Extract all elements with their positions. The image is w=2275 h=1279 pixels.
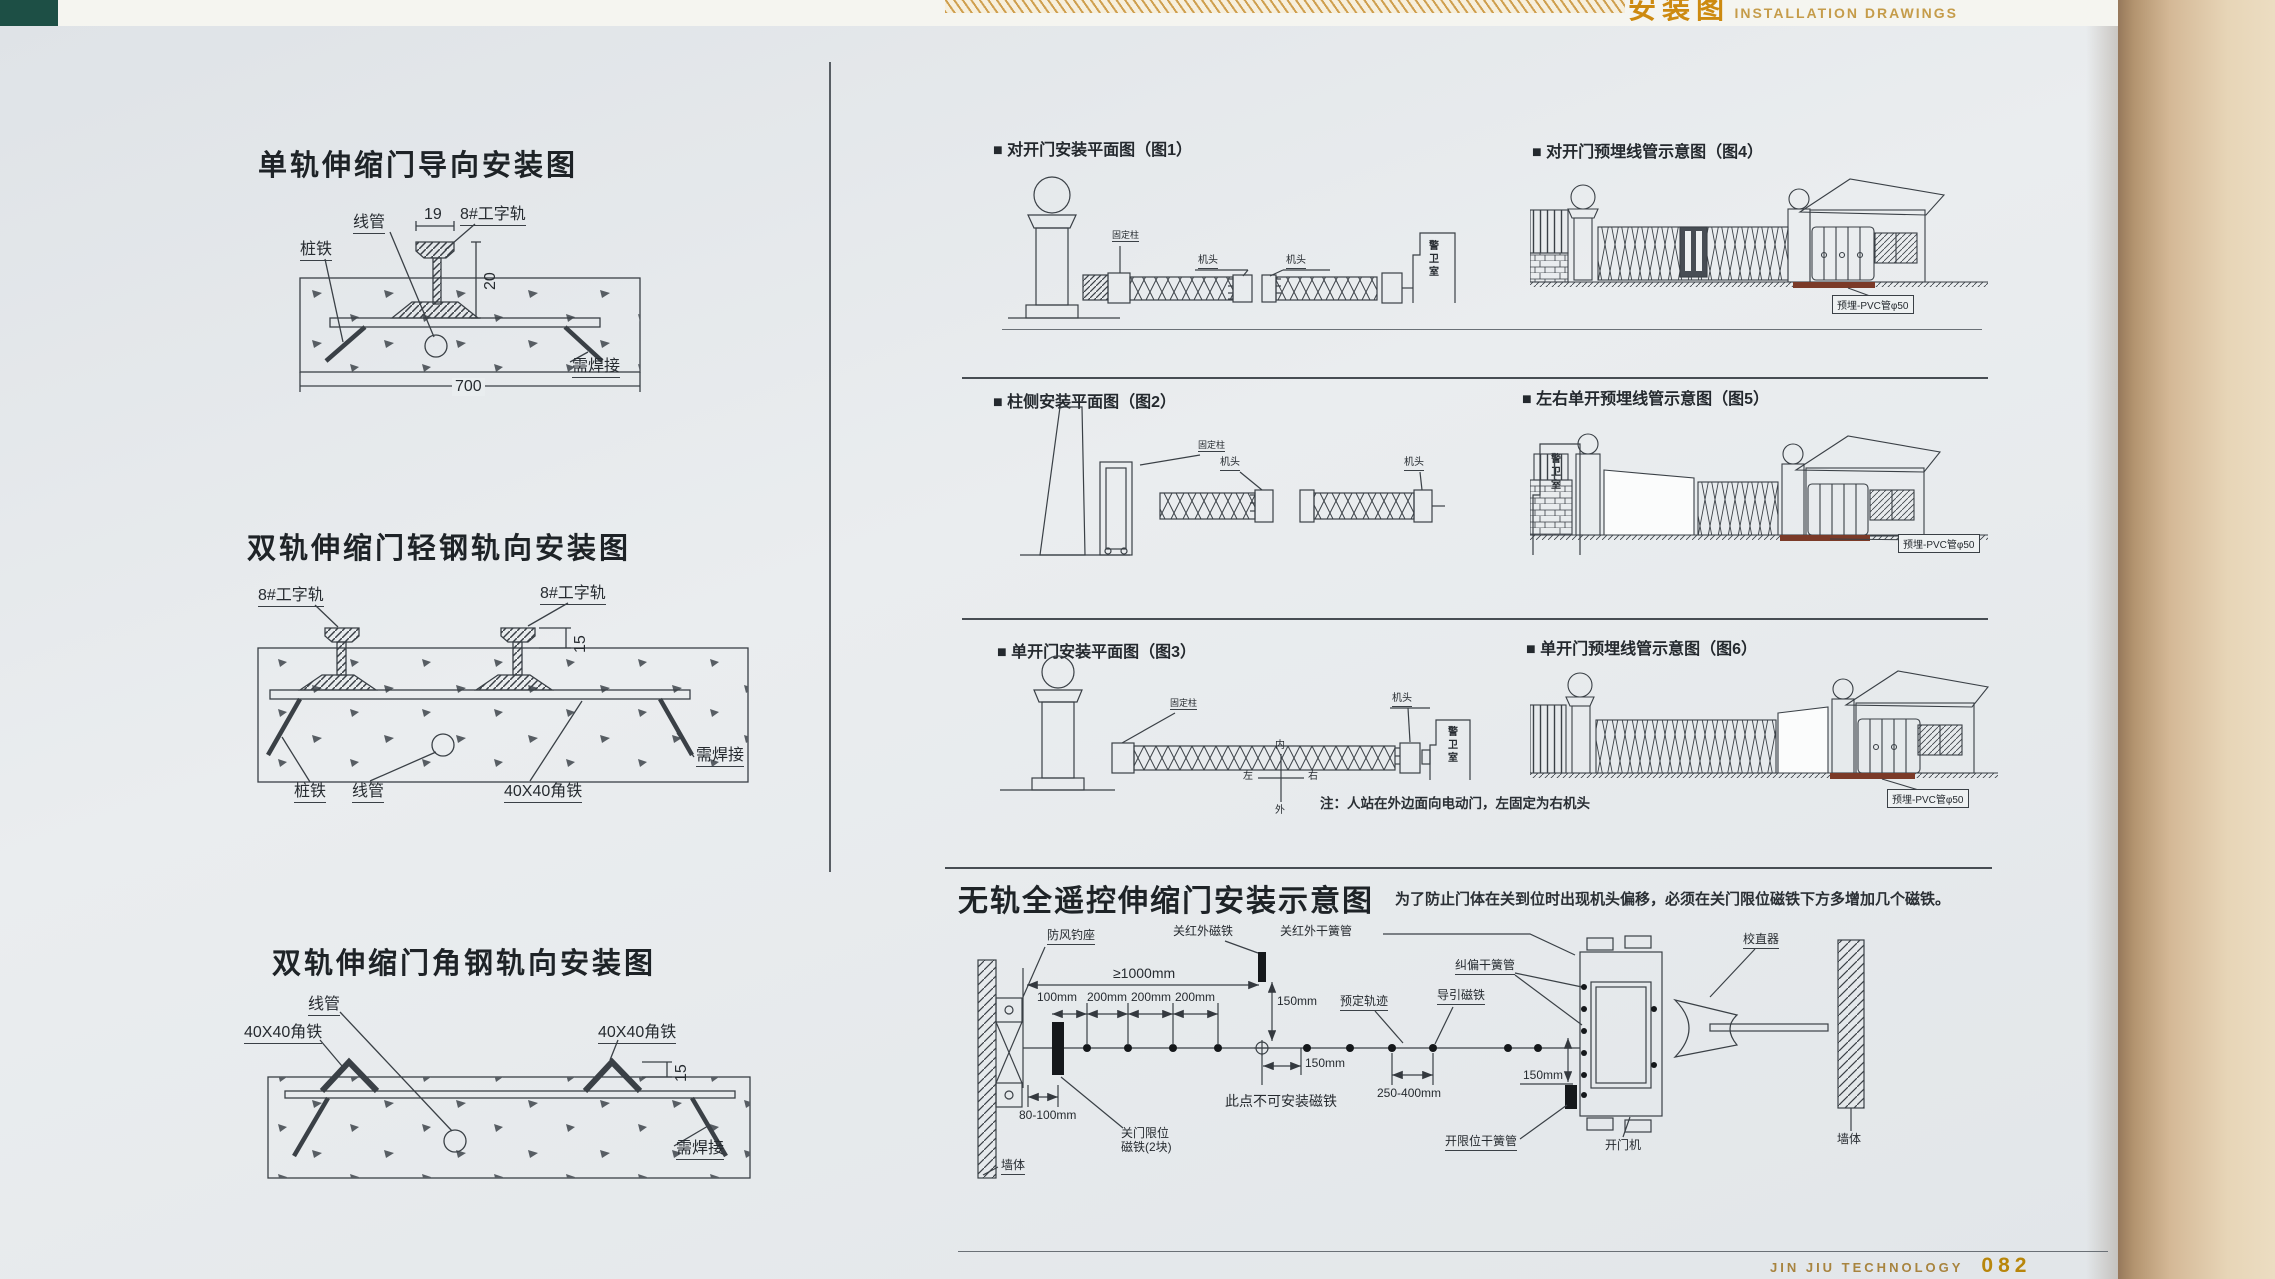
rail-web-right bbox=[513, 642, 522, 675]
row-divider-2 bbox=[962, 618, 1988, 620]
straightener-label: 校直器 bbox=[1743, 933, 1779, 949]
pile-iron-label: 桩铁 bbox=[294, 783, 326, 803]
dim-20: 20 bbox=[482, 272, 500, 290]
compass-left: 左 bbox=[1243, 771, 1253, 783]
fixed-pillar-elevation bbox=[1026, 177, 1078, 318]
planned-track-label: 预定轨迹 bbox=[1340, 995, 1388, 1011]
side-gate-frame bbox=[1100, 462, 1132, 555]
leader-rail-left bbox=[315, 605, 338, 627]
rail-web-left bbox=[337, 642, 346, 675]
end-post bbox=[1382, 273, 1402, 303]
gate-lattice-2 bbox=[1276, 277, 1377, 300]
close-limit-magnet-label: 关门限位磁铁(2块) bbox=[1121, 1127, 1179, 1155]
weld-label: 需焊接 bbox=[676, 1140, 724, 1160]
rail-head-left bbox=[325, 628, 359, 642]
dim-100-label: 100mm bbox=[1037, 991, 1077, 1005]
pile-iron-label: 桩铁 bbox=[300, 241, 332, 261]
pillar-2 bbox=[1782, 444, 1804, 535]
section-header-text: 安装图 INSTALLATION DRAWINGS bbox=[1628, 0, 1968, 21]
table-surface bbox=[2118, 0, 2275, 1279]
dim-250-400-label: 250-400mm bbox=[1377, 1087, 1441, 1101]
gate-lattice-2 bbox=[1314, 493, 1414, 519]
gate-lattice-1 bbox=[1160, 493, 1255, 519]
gate-lattice bbox=[1698, 482, 1778, 535]
fig1-header: ■ 对开门安装平面图（图1） bbox=[993, 136, 1192, 160]
close-limit-magnet-bar bbox=[1052, 1022, 1064, 1075]
dim-150-horiz bbox=[1262, 1048, 1301, 1085]
trackless-svg bbox=[975, 925, 1885, 1190]
entry-railing bbox=[1812, 227, 1874, 280]
close-ir-magnet-bar bbox=[1258, 952, 1266, 982]
close-ir-magnet-label: 关红外磁铁 bbox=[1173, 925, 1233, 939]
paper-right-shadow bbox=[2086, 26, 2118, 1279]
concrete-texture bbox=[268, 1077, 750, 1178]
diagram2-title: 双轨伸缩门轻钢轨向安装图 bbox=[247, 525, 631, 567]
leader-rail-right bbox=[528, 603, 568, 626]
leader-planned-track bbox=[1375, 1011, 1403, 1043]
dim-150-machine-label: 150mm bbox=[1523, 1069, 1563, 1083]
pillar-2 bbox=[1788, 189, 1810, 282]
guard-house bbox=[1800, 179, 1944, 282]
fixed-post-label: 固定柱 bbox=[1112, 230, 1139, 242]
machine-head bbox=[1395, 743, 1420, 773]
diagram-single-rail-svg bbox=[230, 130, 660, 430]
leader-straightener bbox=[1710, 949, 1755, 997]
fixed-post-plan bbox=[1108, 273, 1130, 303]
leader-close-ir-reed bbox=[1383, 934, 1575, 955]
machine-head-label: 机头 bbox=[1392, 693, 1412, 707]
conduit-label: 线管 bbox=[353, 214, 385, 234]
folded-gate-slab bbox=[1778, 707, 1828, 773]
page-edge-gold-hatch bbox=[945, 0, 1625, 13]
fig4-elevation-double-gate: 预埋-PVC管φ50 bbox=[1530, 165, 1995, 335]
leader-fixed-post bbox=[1122, 713, 1175, 743]
machine-head-label-2: 机头 bbox=[1404, 457, 1424, 471]
fixed-post-label: 固定柱 bbox=[1198, 440, 1225, 452]
fence-top bbox=[1534, 454, 1568, 480]
dim-700: 700 bbox=[452, 378, 485, 396]
dim-150-horiz-label: 150mm bbox=[1305, 1057, 1345, 1071]
machine-head-label-2: 机头 bbox=[1286, 255, 1306, 269]
leader-close-ir-magnet bbox=[1225, 941, 1258, 953]
dim-row-200 bbox=[1052, 1003, 1218, 1045]
wind-hook-bracket bbox=[996, 968, 1023, 1107]
diagram-double-rail-light-steel: 8#工字轨 8#工字轨 15 需焊接 桩铁 线管 40X40角铁 bbox=[230, 575, 790, 820]
guard-room-label: 警卫室 bbox=[1426, 240, 1438, 279]
guide-magnet-label: 导引磁铁 bbox=[1437, 989, 1485, 1005]
fig1-svg bbox=[1000, 160, 1500, 340]
ground-hatch bbox=[1530, 773, 1998, 778]
straightener-horn bbox=[1675, 1000, 1737, 1057]
dim-80-100-label: 80-100mm bbox=[1019, 1109, 1076, 1123]
i-rail-left-label: 8#工字轨 bbox=[258, 587, 324, 607]
pvc-pipe-label: 预埋-PVC管φ50 bbox=[1887, 789, 1969, 808]
angle-iron-right-label: 40X40角铁 bbox=[598, 1024, 676, 1044]
diagram-single-rail: 线管 桩铁 8#工字轨 19 20 700 需焊接 bbox=[230, 130, 660, 430]
leader-head2 bbox=[1420, 472, 1422, 490]
dim-250-400 bbox=[1392, 1053, 1433, 1085]
concrete-texture bbox=[258, 648, 748, 782]
close-ir-reed-label: 关红外干簧管 bbox=[1280, 925, 1352, 939]
wall-left-label: 墙体 bbox=[1001, 1159, 1025, 1175]
dim-gte1000-label: ≥1000mm bbox=[1113, 965, 1175, 981]
fence-left bbox=[1530, 210, 1568, 253]
pillar-2 bbox=[1832, 679, 1854, 773]
fig5-svg bbox=[1530, 420, 1995, 585]
pillar-1 bbox=[1568, 185, 1598, 280]
gate-lattice-1 bbox=[1130, 277, 1233, 300]
gate-lattice bbox=[1596, 720, 1776, 773]
page-footer: JIN JIU TECHNOLOGY 082 bbox=[1770, 1254, 2031, 1278]
compass-inner: 内 bbox=[1275, 740, 1285, 752]
pillar-1 bbox=[1566, 673, 1594, 773]
i-rail-label: 8#工字轨 bbox=[460, 206, 526, 226]
fixed-pillar-elevation bbox=[1032, 656, 1084, 790]
entry-railing bbox=[1858, 719, 1920, 773]
folded-gate-slab bbox=[1604, 470, 1694, 535]
gate-lattice bbox=[1134, 746, 1395, 770]
fig4-svg bbox=[1530, 165, 1995, 335]
dim-19: 19 bbox=[424, 206, 442, 224]
deviation-reed-label: 纠偏干簧管 bbox=[1455, 959, 1515, 975]
wall-column bbox=[1040, 407, 1085, 555]
compass-outer: 外 bbox=[1275, 805, 1285, 817]
guard-house bbox=[1846, 671, 1988, 773]
fixed-post-label: 固定柱 bbox=[1170, 698, 1197, 710]
section-title-en: INSTALLATION DRAWINGS bbox=[1734, 5, 1957, 21]
leader-head2 bbox=[1270, 270, 1330, 276]
fig2-svg bbox=[1000, 405, 1600, 585]
machine-head-label-1: 机头 bbox=[1198, 255, 1218, 269]
leader-deviation-reed bbox=[1515, 973, 1582, 1025]
dim-80-100 bbox=[1028, 1085, 1058, 1107]
fig2-plan-side-mount: 固定柱 机头 机头 警卫室 bbox=[1000, 405, 1600, 585]
guide-rod bbox=[1710, 1024, 1828, 1031]
angle-iron-left-label: 40X40角铁 bbox=[244, 1024, 322, 1044]
fig4-header: ■ 对开门预埋线管示意图（图4） bbox=[1532, 138, 1763, 162]
leader-fixed-post bbox=[1140, 455, 1200, 465]
section-title-cn: 安装图 bbox=[1628, 0, 1730, 21]
i-rail-right-label: 8#工字轨 bbox=[540, 585, 606, 605]
trackless-note: 为了防止门体在关到位时出现机头偏移，必须在关门限位磁铁下方多增加几个磁铁。 bbox=[1395, 888, 1950, 909]
fig6-svg bbox=[1530, 655, 2005, 835]
diagram3-title: 双轨伸缩门角钢轨向安装图 bbox=[272, 940, 656, 982]
fixed-post-plan bbox=[1112, 743, 1134, 773]
buried-pvc-pipe bbox=[1780, 535, 1870, 541]
guard-room-label: 警卫室 bbox=[1445, 726, 1457, 765]
rail-head bbox=[416, 242, 454, 258]
fig3-plan-single-gate: 固定柱 机头 警卫室 内 外 左 右 注：人站在外边面向电动门，左固定为右机头 bbox=[1000, 650, 1610, 835]
wall-bar bbox=[1083, 275, 1108, 300]
leader-angle-left bbox=[320, 1040, 342, 1066]
connector-block bbox=[1422, 750, 1430, 764]
pvc-pipe-label: 预埋-PVC管φ50 bbox=[1898, 534, 1980, 553]
leader-guide-magnet bbox=[1435, 1007, 1453, 1044]
wall-left bbox=[978, 960, 996, 1178]
buried-pvc-pipe bbox=[1830, 773, 1915, 779]
brick-wall bbox=[1530, 480, 1572, 535]
open-limit-reed-label: 开限位干簧管 bbox=[1445, 1135, 1517, 1151]
row-divider-1 bbox=[962, 377, 1988, 379]
leader-rail bbox=[445, 224, 475, 250]
machine-head-label-1: 机头 bbox=[1220, 457, 1240, 471]
dim-200-label-3: 200mm bbox=[1175, 991, 1215, 1005]
no-magnet-label: 此点不可安装磁铁 bbox=[1225, 1093, 1337, 1109]
dim-200-label-2: 200mm bbox=[1131, 991, 1171, 1005]
pvc-pipe-label: 预埋-PVC管φ50 bbox=[1832, 295, 1914, 314]
trackless-title: 无轨全遥控伸缩门安装示意图 bbox=[958, 876, 1374, 920]
wall-right-label: 墙体 bbox=[1837, 1133, 1861, 1147]
leader-head1 bbox=[1240, 472, 1262, 490]
rail-web bbox=[433, 258, 441, 304]
section-header-cropped: 安装图 INSTALLATION DRAWINGS bbox=[1628, 0, 1968, 21]
leader-head bbox=[1390, 708, 1430, 742]
pillar-1 bbox=[1576, 434, 1600, 535]
wind-hook-label: 防风钓座 bbox=[1047, 929, 1095, 945]
door-operator bbox=[1580, 936, 1662, 1132]
ground-hatch bbox=[1530, 282, 1988, 287]
entry-railing bbox=[1808, 484, 1868, 535]
column-divider bbox=[829, 62, 831, 872]
weld-label: 需焊接 bbox=[572, 358, 620, 378]
wall-right bbox=[1838, 940, 1864, 1108]
gate-center-panel bbox=[1680, 227, 1707, 277]
fig1-plan-double-gate: 固定柱 机头 机头 警卫室 bbox=[1000, 160, 1500, 340]
end-post bbox=[1414, 490, 1432, 522]
dim-15: 15 bbox=[572, 635, 590, 653]
trackless-install-diagram: 防风钓座 关红外磁铁 关红外干簧管 ≥1000mm 100mm 200mm 20… bbox=[975, 925, 1885, 1190]
fig5-elevation-single-side: 预埋-PVC管φ50 bbox=[1530, 420, 1995, 585]
dim-200-label-1: 200mm bbox=[1087, 991, 1127, 1005]
weld-label: 需焊接 bbox=[696, 747, 744, 767]
door-operator-label: 开门机 bbox=[1605, 1139, 1641, 1153]
dim-15-lines bbox=[539, 628, 571, 648]
angle-iron-label: 40X40角铁 bbox=[504, 783, 582, 803]
diagram-double-rail-angle-steel: 线管 40X40角铁 40X40角铁 需焊接 15 bbox=[230, 990, 790, 1230]
conduit-label: 线管 bbox=[352, 783, 384, 803]
rail-head-right bbox=[501, 628, 535, 642]
dim-15-lines bbox=[642, 1062, 672, 1077]
row-divider-3 bbox=[945, 867, 1992, 869]
brick-wall bbox=[1530, 253, 1568, 282]
photographed-catalog-page: 安装图 INSTALLATION DRAWINGS 单轨伸缩门导向安装图 bbox=[0, 0, 2275, 1279]
machine-head-2 bbox=[1300, 490, 1314, 522]
brand-text: JIN JIU TECHNOLOGY bbox=[1770, 1260, 1963, 1275]
fence-left bbox=[1530, 705, 1566, 773]
compass-right: 右 bbox=[1308, 771, 1318, 783]
footer-rule bbox=[958, 1251, 2108, 1252]
conduit-label: 线管 bbox=[308, 996, 340, 1016]
page-number: 082 bbox=[1981, 1254, 2031, 1278]
fig6-elevation-single-gate: 预埋-PVC管φ50 bbox=[1530, 655, 2005, 835]
dim-150-vert-label: 150mm bbox=[1277, 995, 1317, 1009]
leader-open-limit-reed bbox=[1520, 1105, 1567, 1139]
dim-15: 15 bbox=[673, 1064, 691, 1082]
buried-pvc-pipe bbox=[1793, 282, 1875, 288]
